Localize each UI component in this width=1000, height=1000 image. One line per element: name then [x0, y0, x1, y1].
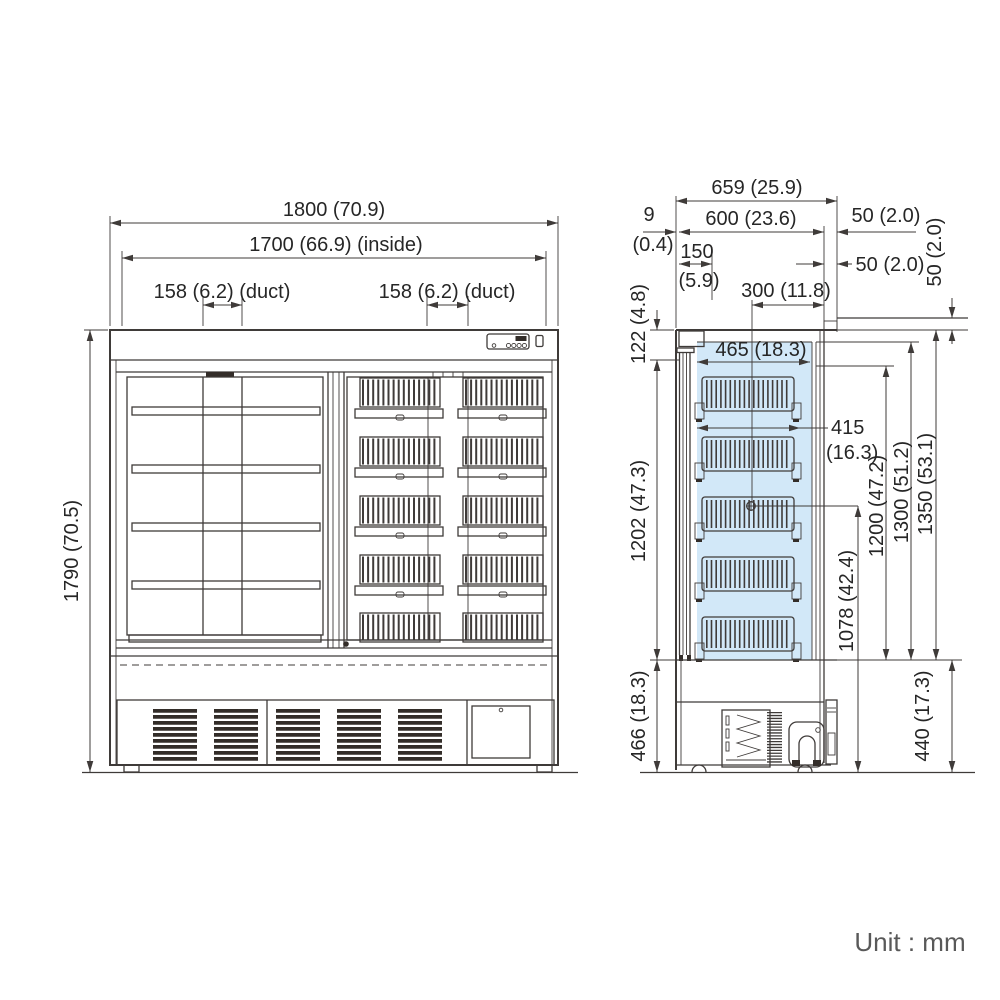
dim-side-height-1350: 1350 (53.1) [915, 433, 937, 535]
access-panel [472, 706, 530, 758]
dim-front-duct-left: 158 (6.2) (duct) [154, 281, 291, 303]
compressor [789, 722, 824, 767]
dim-side-clearance-top: 50 (2.0) [924, 218, 946, 287]
ventilation-grille [117, 700, 554, 765]
access-port [746, 501, 756, 511]
dim-side-top-recess: 150 [680, 241, 713, 263]
dim-side-port-height: 1078 (42.4) [836, 550, 858, 652]
dim-side-port-from-rear: 300 (11.8) [741, 280, 831, 302]
caster-front [692, 765, 706, 772]
caster-rear [798, 765, 812, 772]
refrigerator-dimension-diagram: 1800 (70.9) 1700 (66.9) (inside) 158 (6.… [0, 0, 1000, 1000]
condenser-unit [722, 710, 770, 767]
dim-side-top-frame-height: 122 (4.8) [628, 284, 650, 364]
dim-side-clearance-rear-duct: 50 (2.0) [856, 254, 925, 276]
foot-right [537, 765, 552, 772]
control-panel [487, 334, 543, 349]
dim-side-top-recess-inch: (5.9) [678, 270, 719, 292]
technical-drawing: 1800 (70.9) 1700 (66.9) (inside) 158 (6.… [0, 0, 1000, 1000]
dim-side-shelf-depth: 465 (18.3) [715, 339, 806, 361]
left-glass-door [127, 372, 323, 642]
dim-side-height-1200: 1200 (47.2) [866, 455, 888, 557]
front-view-drawing [82, 330, 578, 773]
dim-side-interior-height: 1202 (47.3) [628, 460, 650, 562]
dim-side-front-offset: 9 [643, 204, 654, 226]
dim-front-width-inside: 1700 (66.9) (inside) [249, 234, 422, 256]
dim-side-machine-room: 440 (17.3) [912, 670, 934, 761]
front-view-dimensions: 1800 (70.9) 1700 (66.9) (inside) 158 (6.… [61, 199, 558, 772]
dim-front-height-overall: 1790 (70.5) [61, 500, 83, 602]
dim-side-basket-depth: 415 [831, 417, 864, 439]
foot-left [124, 765, 139, 772]
unit-note: Unit : mm [854, 927, 965, 957]
dim-side-depth-overall: 659 (25.9) [711, 177, 802, 199]
dim-side-depth-body: 600 (23.6) [705, 208, 796, 230]
dim-side-clearance-rear: 50 (2.0) [852, 205, 921, 227]
door-profile [677, 348, 694, 661]
right-glass-door [343, 372, 546, 647]
dim-front-width-overall: 1800 (70.9) [283, 199, 385, 221]
dim-side-lower-section: 466 (18.3) [628, 670, 650, 761]
dim-front-duct-right: 158 (6.2) (duct) [379, 281, 516, 303]
rear-junction-box [826, 700, 837, 764]
door-lock [343, 641, 349, 647]
dim-side-height-1300: 1300 (51.2) [891, 441, 913, 543]
dim-side-front-offset-inch: (0.4) [632, 234, 673, 256]
